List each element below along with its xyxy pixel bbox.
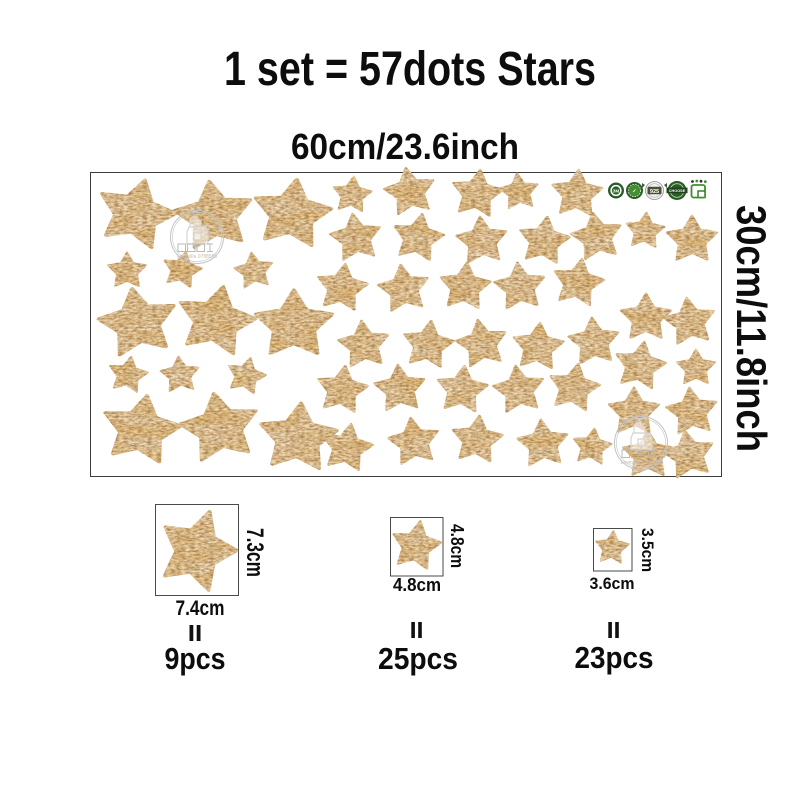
svg-text:60cm/23.6inch: 60cm/23.6inch: [291, 126, 519, 167]
svg-text:✓: ✓: [632, 189, 636, 195]
svg-text:9pcs: 9pcs: [165, 641, 226, 676]
svg-text:25pcs: 25pcs: [378, 641, 458, 676]
svg-text:4.8cm: 4.8cm: [393, 575, 441, 595]
svg-text:3.5cm: 3.5cm: [638, 528, 657, 572]
svg-text:23pcs: 23pcs: [575, 640, 654, 675]
svg-text:925: 925: [650, 189, 659, 195]
svg-text:7.3cm: 7.3cm: [241, 528, 268, 577]
svg-text:4.8cm: 4.8cm: [447, 524, 467, 568]
svg-text:CHOOSE: CHOOSE: [669, 189, 686, 193]
svg-text:1 set = 57dots Stars: 1 set = 57dots Stars: [224, 43, 596, 96]
svg-text:3M: 3M: [613, 188, 620, 193]
svg-text:30cm/11.8inch: 30cm/11.8inch: [728, 205, 775, 452]
svg-text:7.4cm: 7.4cm: [176, 597, 225, 620]
svg-text:Lovevilla 0788555: Lovevilla 0788555: [621, 460, 662, 466]
svg-text:3.6cm: 3.6cm: [590, 574, 635, 593]
svg-text:Lovevilla 0788555: Lovevilla 0788555: [177, 254, 218, 260]
